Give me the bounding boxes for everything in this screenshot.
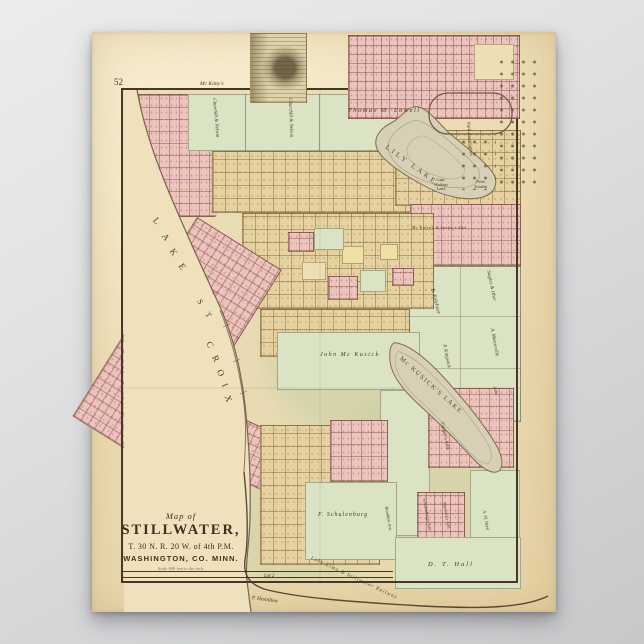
label-p-hamilton: P. Hamilton	[251, 596, 278, 605]
page-number: 52	[114, 78, 123, 87]
label-thomas-lowell: Thomas M. Lowell	[348, 108, 421, 115]
backdrop: 52 Mc Kinty's Churchill & Nelson Churchi…	[0, 0, 644, 644]
poster-paper: 52 Mc Kinty's Churchill & Nelson Churchi…	[92, 32, 556, 612]
title-cartouche: Map of STILLWATER, T. 30 N. R. 20 W. of …	[111, 511, 251, 571]
title-prefix: Map of	[111, 511, 251, 521]
label-mckinstry: Mc Kinstry & Seeley's Add.	[412, 226, 467, 230]
title-scale: Scale 600 feet to the inch.	[111, 566, 251, 571]
title-township: T. 30 N. R. 20 W. of 4th P.M.	[111, 542, 251, 551]
label-capt-watkins: Capt. Watkins Land	[434, 178, 448, 192]
map-title: STILLWATER,	[111, 522, 251, 539]
cartouche-rule-upper	[121, 571, 393, 572]
title-county: WASHINGTON, CO. MINN.	[111, 554, 251, 563]
park-trees-grove	[496, 56, 544, 192]
label-f-schulenburg: F. Schulenburg	[318, 512, 368, 518]
label-john: John	[491, 386, 498, 396]
label-peter-tomlett: Peter Tomlett	[474, 180, 487, 189]
label-dt-hall: D. T. Hall	[428, 562, 474, 569]
label-lot2: Lot 2	[264, 574, 274, 579]
label-john-mckusick: John Mc Kusick	[320, 352, 380, 358]
engraving-vignette	[250, 33, 307, 103]
label-mckintys: Mc Kinty's	[200, 82, 224, 88]
